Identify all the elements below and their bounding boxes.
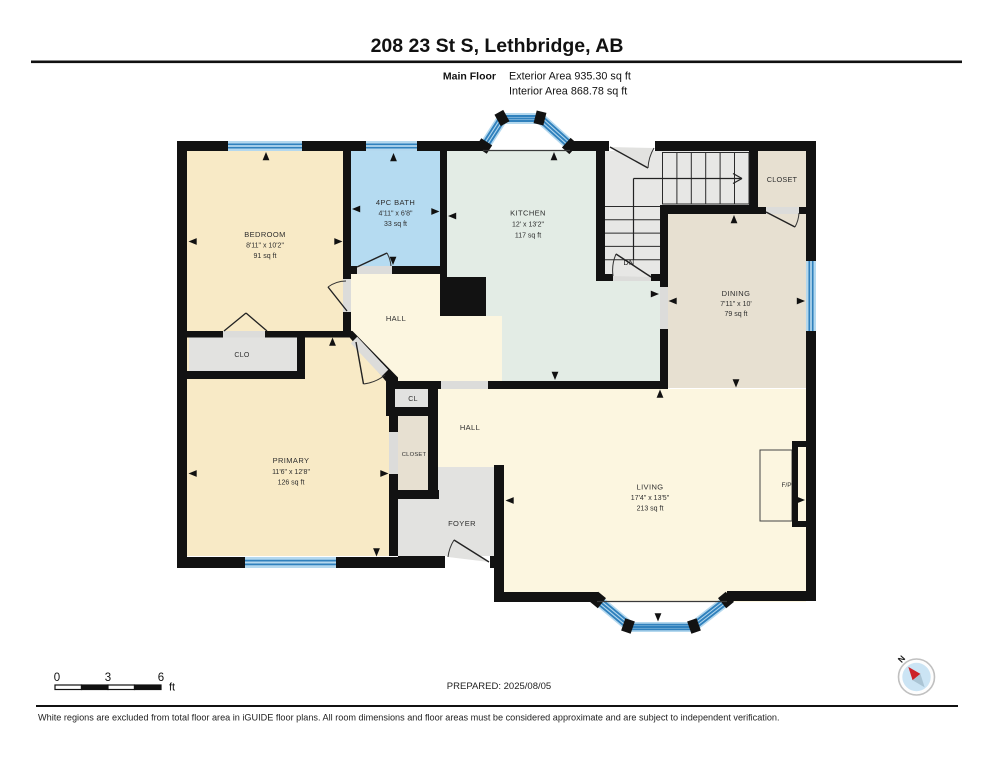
svg-text:0: 0	[54, 672, 60, 684]
svg-text:White regions are excluded fro: White regions are excluded from total fl…	[38, 713, 780, 723]
svg-text:ft: ft	[169, 682, 175, 694]
svg-text:17'4" x 13'5": 17'4" x 13'5"	[631, 495, 670, 502]
svg-text:CLOSET: CLOSET	[402, 452, 427, 458]
svg-text:HALL: HALL	[460, 423, 480, 432]
svg-text:PREPARED: 2025/08/05: PREPARED: 2025/08/05	[447, 681, 551, 692]
svg-text:CLO: CLO	[234, 352, 250, 359]
svg-text:KITCHEN: KITCHEN	[510, 209, 546, 218]
svg-text:CLOSET: CLOSET	[767, 175, 798, 184]
svg-text:8'11" x 10'2": 8'11" x 10'2"	[246, 243, 284, 250]
svg-text:FOYER: FOYER	[448, 519, 476, 528]
svg-text:BEDROOM: BEDROOM	[244, 230, 286, 239]
svg-text:DINING: DINING	[722, 289, 751, 298]
svg-text:213 sq ft: 213 sq ft	[637, 506, 664, 513]
svg-text:12' x 13'2": 12' x 13'2"	[512, 222, 545, 229]
svg-text:DN: DN	[624, 260, 635, 267]
svg-text:11'6" x 12'8": 11'6" x 12'8"	[272, 469, 310, 476]
svg-text:4'11" x 6'8": 4'11" x 6'8"	[379, 211, 413, 218]
svg-text:33 sq ft: 33 sq ft	[384, 221, 407, 228]
svg-text:CL: CL	[408, 396, 418, 403]
svg-text:4PC BATH: 4PC BATH	[376, 198, 415, 207]
svg-text:7'11" x 10': 7'11" x 10'	[720, 301, 752, 308]
svg-text:79 sq ft: 79 sq ft	[725, 311, 748, 318]
svg-text:F/P: F/P	[781, 482, 791, 489]
svg-text:6: 6	[158, 672, 164, 684]
svg-text:3: 3	[105, 672, 111, 684]
svg-text:208 23 St S, Lethbridge, AB: 208 23 St S, Lethbridge, AB	[371, 35, 624, 57]
svg-text:PRIMARY: PRIMARY	[273, 456, 310, 465]
svg-text:Interior Area 868.78 sq ft: Interior Area 868.78 sq ft	[509, 86, 627, 98]
svg-text:Main Floor: Main Floor	[443, 71, 496, 83]
svg-text:LIVING: LIVING	[637, 483, 664, 492]
svg-text:117 sq ft: 117 sq ft	[515, 233, 541, 240]
svg-text:Exterior Area 935.30 sq ft: Exterior Area 935.30 sq ft	[509, 71, 631, 83]
svg-text:HALL: HALL	[386, 314, 406, 323]
svg-text:126 sq ft: 126 sq ft	[278, 480, 305, 487]
svg-text:91 sq ft: 91 sq ft	[254, 253, 277, 260]
